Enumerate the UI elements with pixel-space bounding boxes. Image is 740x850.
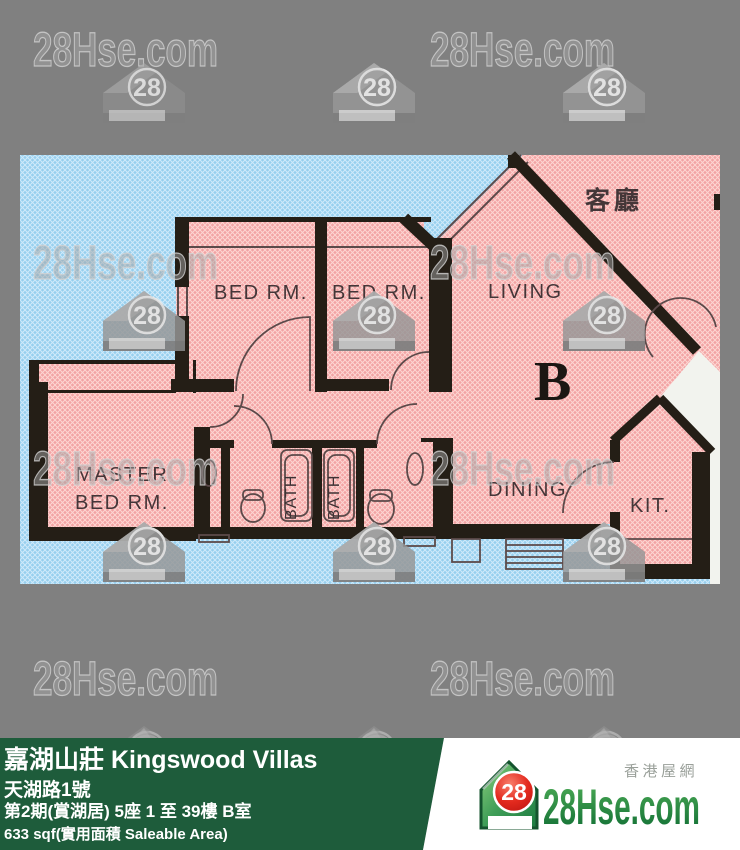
svg-text:28: 28 [363,533,391,561]
svg-text:28Hse.com: 28Hse.com [430,237,615,290]
svg-text:28: 28 [593,302,621,330]
svg-text:633 sqf(實用面積 Saleable Area): 633 sqf(實用面積 Saleable Area) [4,825,228,843]
svg-text:28Hse.com: 28Hse.com [33,237,218,290]
svg-text:28Hse.com: 28Hse.com [33,443,218,496]
svg-text:BED RM.: BED RM. [214,282,308,304]
svg-text:第2期(賞湖居) 5座 1 至 39樓 B室: 第2期(賞湖居) 5座 1 至 39樓 B室 [4,801,252,821]
svg-text:28: 28 [363,302,391,330]
svg-text:嘉湖山莊 Kingswood Villas: 嘉湖山莊 Kingswood Villas [4,745,317,774]
svg-text:客廳: 客廳 [585,186,643,215]
svg-text:28: 28 [133,302,161,330]
svg-text:天湖路1號: 天湖路1號 [4,778,91,801]
svg-text:28: 28 [363,74,391,102]
svg-text:28: 28 [593,533,621,561]
svg-text:BATH: BATH [283,475,300,520]
svg-text:28Hse.com: 28Hse.com [430,653,615,706]
svg-text:B: B [534,351,571,413]
svg-text:28Hse.com: 28Hse.com [33,24,218,77]
svg-text:KIT.: KIT. [630,495,670,517]
svg-text:28Hse.com: 28Hse.com [33,653,218,706]
svg-text:28: 28 [593,74,621,102]
svg-text:28: 28 [133,74,161,102]
svg-text:28Hse.com: 28Hse.com [430,24,615,77]
svg-text:28: 28 [501,779,527,805]
svg-text:28Hse.com: 28Hse.com [543,779,700,835]
svg-text:香港屋網: 香港屋網 [624,763,698,780]
svg-text:28: 28 [133,533,161,561]
svg-text:BATH: BATH [326,475,343,520]
svg-text:28Hse.com: 28Hse.com [430,443,615,496]
